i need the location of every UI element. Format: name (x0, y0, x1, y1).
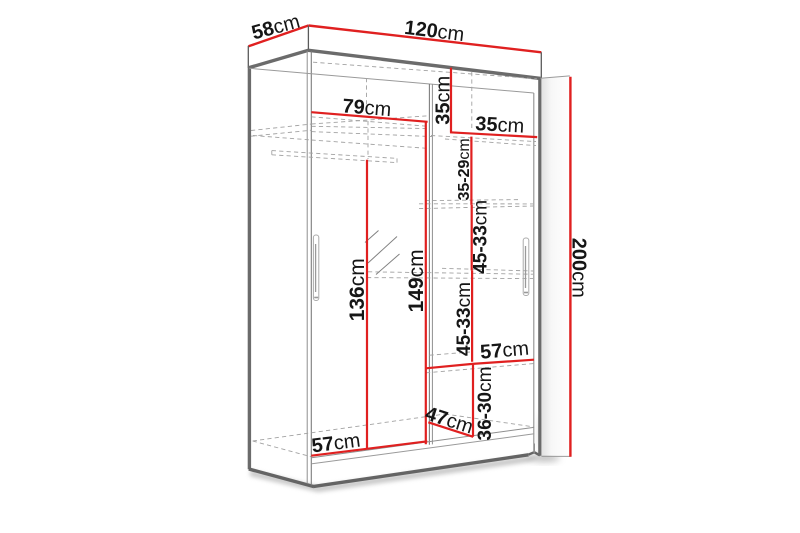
svg-text:136cm: 136cm (346, 258, 369, 321)
svg-text:45-33cm: 45-33cm (470, 200, 491, 274)
svg-text:45-33cm: 45-33cm (454, 282, 475, 356)
svg-text:57cm: 57cm (310, 430, 361, 458)
svg-text:35-29cm: 35-29cm (456, 138, 473, 200)
svg-text:58cm: 58cm (249, 11, 302, 45)
svg-text:200cm: 200cm (568, 238, 590, 298)
svg-text:57cm: 57cm (479, 338, 530, 364)
svg-text:35cm: 35cm (475, 113, 525, 138)
svg-text:79cm: 79cm (342, 95, 392, 121)
svg-text:47cm: 47cm (422, 403, 475, 439)
svg-text:35cm: 35cm (433, 76, 455, 125)
svg-text:36-30cm: 36-30cm (475, 367, 496, 441)
svg-text:149cm: 149cm (405, 249, 428, 312)
svg-text:120cm: 120cm (403, 17, 465, 46)
